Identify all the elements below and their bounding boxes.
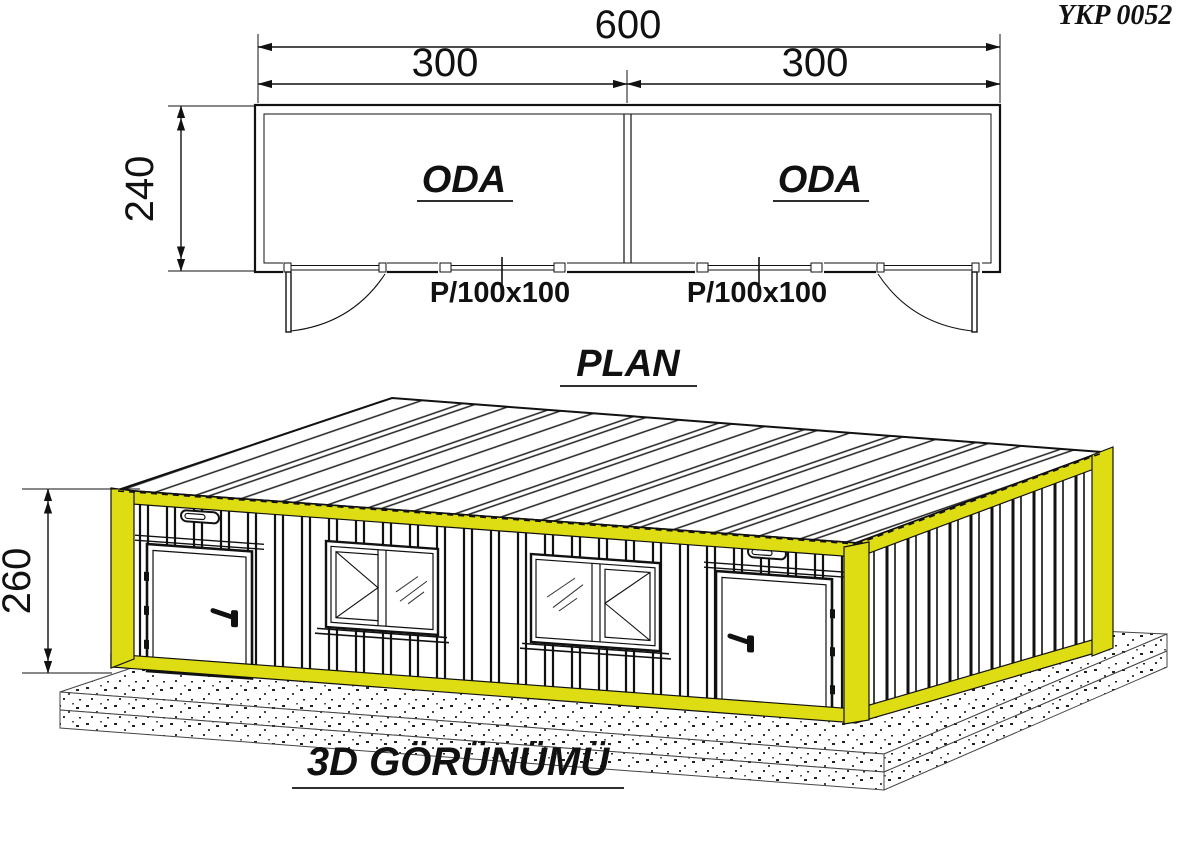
- dim-height-value: 260: [0, 548, 39, 615]
- dim-depth-value: 240: [118, 156, 162, 223]
- room-label-right: ODA: [778, 159, 862, 201]
- door-3d-right: [704, 562, 844, 718]
- three-d-view: 260 3D GÖRÜNÜMÜ: [0, 398, 1167, 790]
- dimension-total-width: 600: [258, 3, 1000, 47]
- window-sash: [336, 552, 378, 621]
- dimension-depth: 240: [118, 106, 256, 271]
- hinge: [830, 609, 835, 618]
- frame-corner-column-back-right: [1092, 447, 1113, 656]
- window-3d-left: [315, 540, 449, 642]
- window-label-left: P/100x100: [430, 277, 570, 309]
- plan-title: PLAN: [576, 343, 681, 385]
- technical-drawing: 600 300 300 240: [0, 0, 1200, 849]
- hinge: [144, 640, 149, 649]
- hinge: [830, 685, 835, 694]
- view3d-title: 3D GÖRÜNÜMÜ: [307, 739, 610, 784]
- plan-view: 600 300 300 240: [118, 3, 1000, 386]
- door-swing-arc: [878, 274, 972, 331]
- drawing-code: YKP 0052: [1058, 0, 1173, 31]
- plan-door-left: [283, 262, 387, 332]
- hinge: [144, 572, 149, 581]
- drawing-sheet: 600 300 300 240: [0, 0, 1200, 849]
- door-leaf: [286, 272, 291, 332]
- plan-door-right: [876, 262, 982, 332]
- hinge: [830, 647, 835, 656]
- door-swing-arc: [291, 274, 385, 331]
- frame-corner-column-left: [111, 488, 134, 668]
- vent-left: [181, 510, 219, 524]
- frame-corner-column-front-right: [844, 542, 869, 724]
- door-leaf: [972, 272, 977, 332]
- dim-total-width-value: 600: [595, 3, 662, 47]
- dim-right-width-value: 300: [782, 41, 849, 85]
- plan-walls: [255, 105, 1000, 272]
- window-3d-right: [520, 553, 671, 659]
- window-label-right: P/100x100: [687, 277, 827, 309]
- window-sash: [605, 569, 650, 640]
- room-label-left: ODA: [422, 159, 506, 201]
- dim-left-width-value: 300: [412, 41, 479, 85]
- hinge: [144, 606, 149, 615]
